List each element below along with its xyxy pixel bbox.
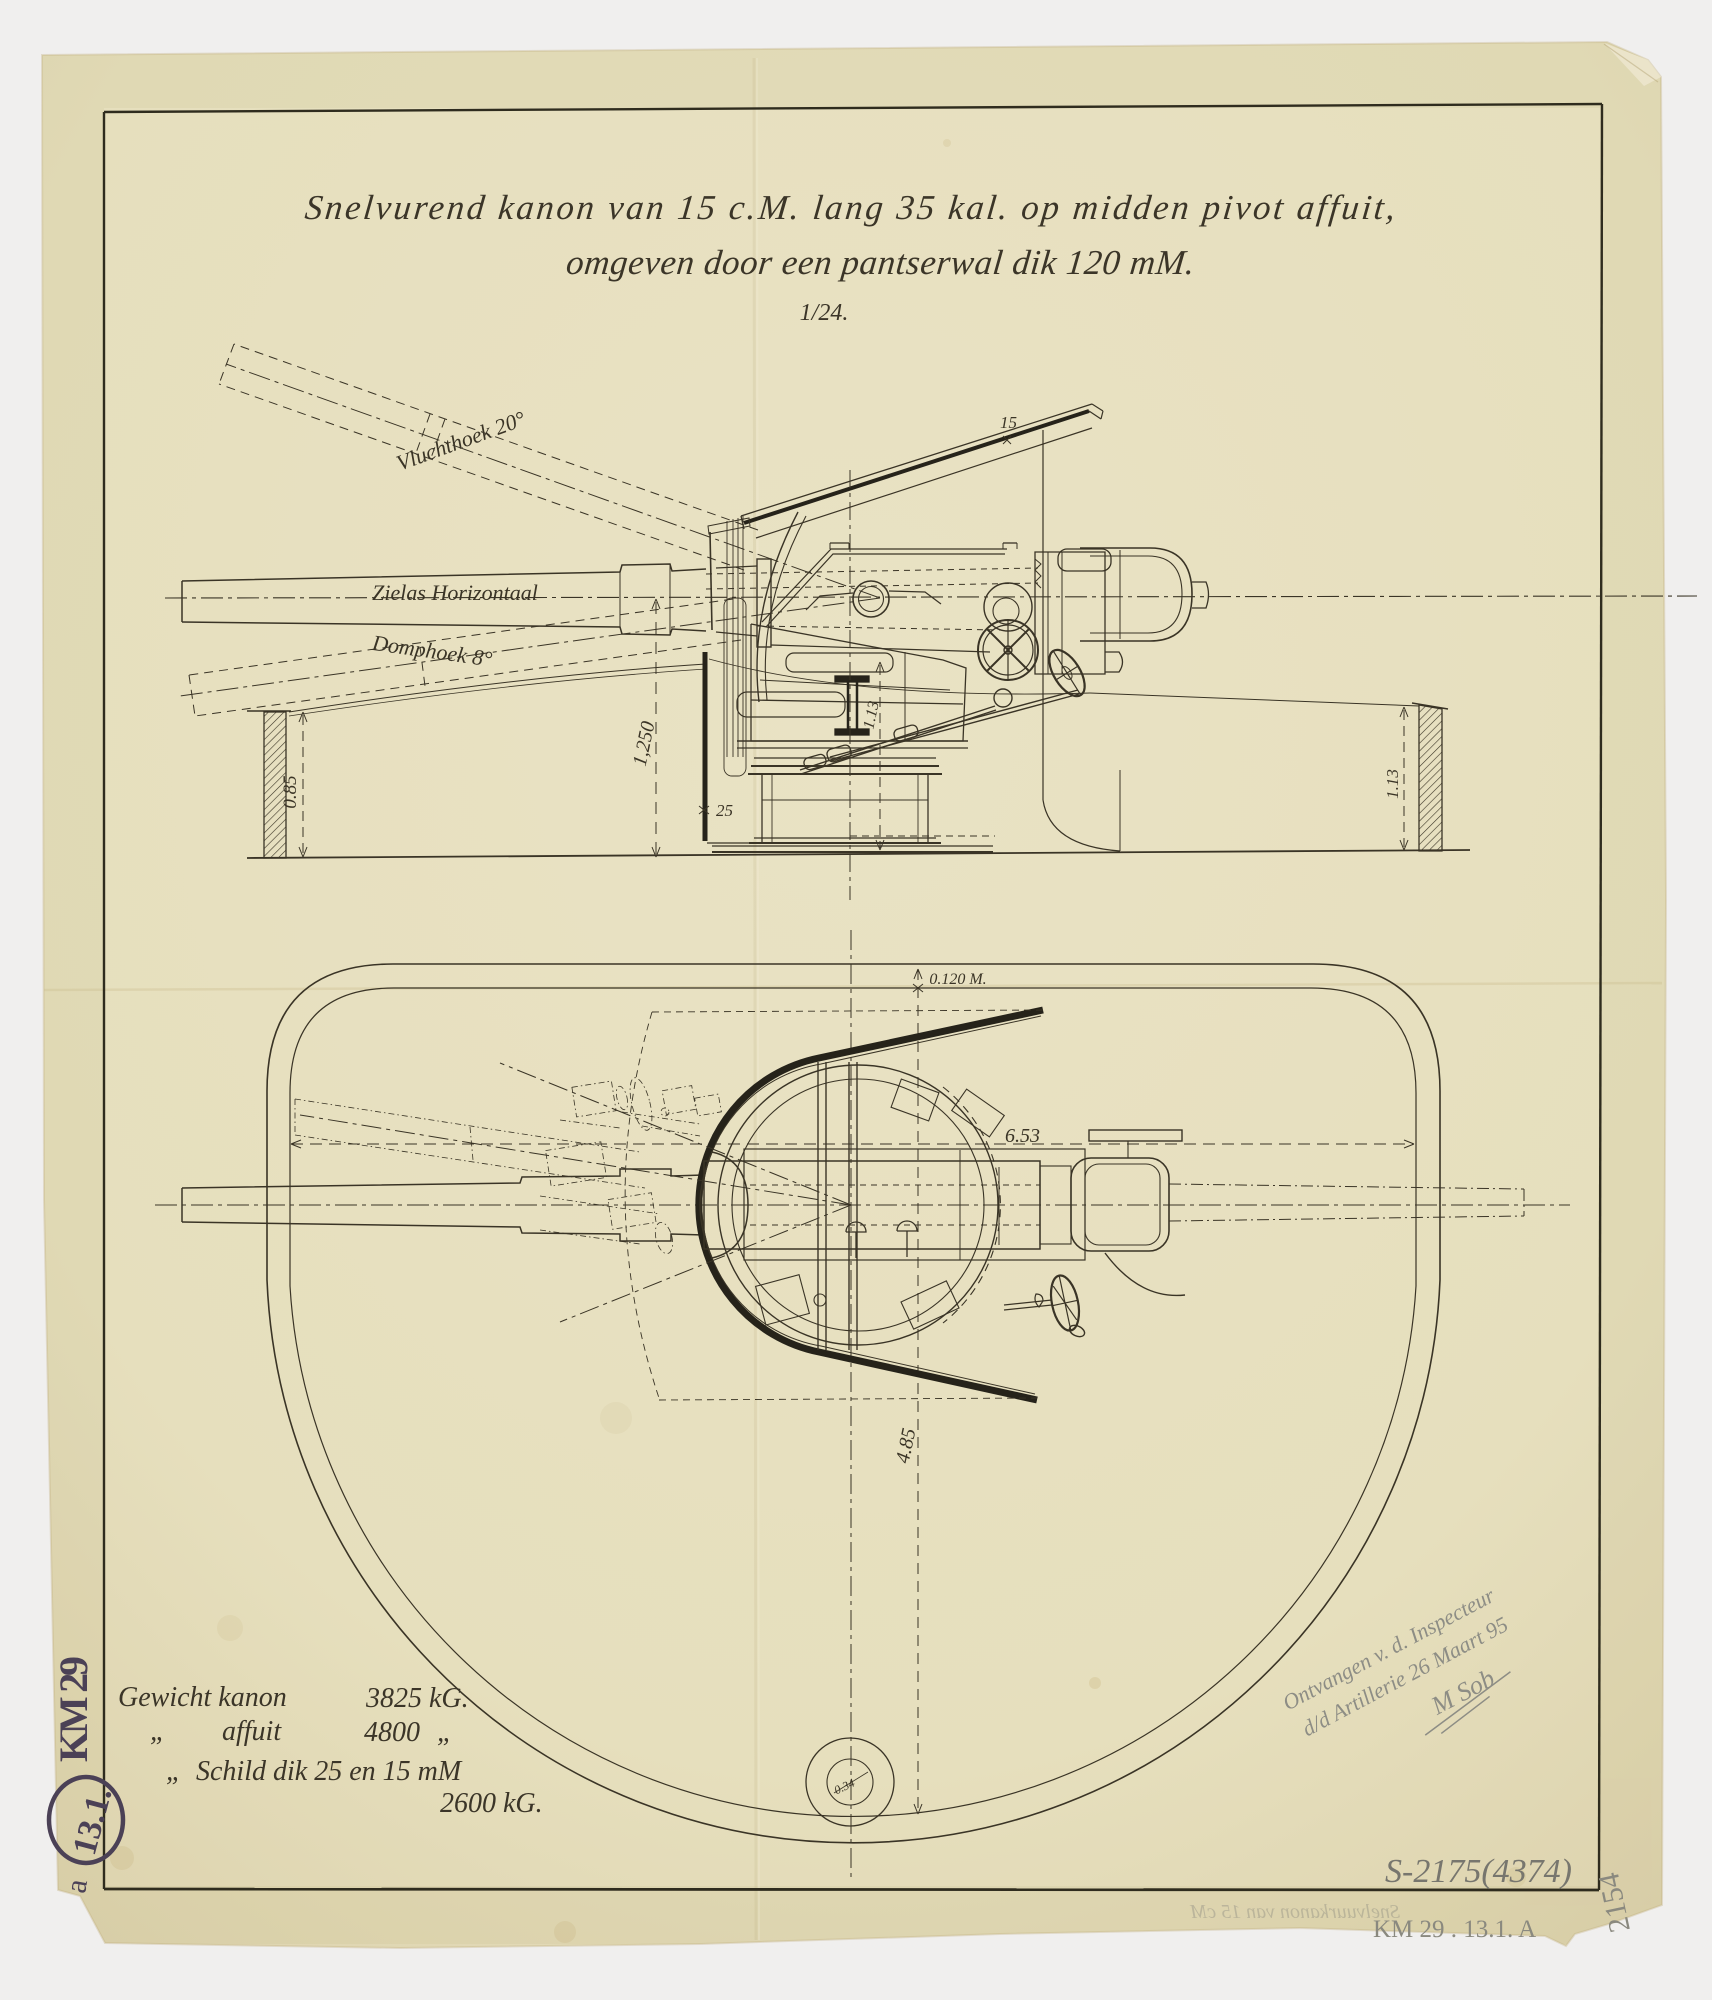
svg-text:Gewicht kanon: Gewicht kanon bbox=[118, 1682, 287, 1713]
svg-text:1.13: 1.13 bbox=[1383, 769, 1402, 799]
svg-text:Snelvuurkanon van 15 cM: Snelvuurkanon van 15 cM bbox=[1189, 1901, 1400, 1923]
svg-text:„: „ bbox=[150, 1716, 166, 1747]
svg-text:25: 25 bbox=[716, 801, 733, 820]
svg-text:6.53: 6.53 bbox=[1005, 1125, 1040, 1147]
svg-text:KM 29: KM 29 bbox=[51, 1656, 96, 1762]
svg-text:0.85: 0.85 bbox=[280, 775, 301, 808]
svg-text:affuit: affuit bbox=[222, 1716, 282, 1747]
svg-text:1/24.: 1/24. bbox=[800, 300, 849, 326]
svg-text:15: 15 bbox=[1000, 413, 1017, 432]
svg-text:Zielas Horizontaal: Zielas Horizontaal bbox=[372, 580, 538, 605]
svg-text:0.120 M.: 0.120 M. bbox=[929, 971, 986, 988]
svg-text:4800: 4800 bbox=[364, 1717, 420, 1748]
svg-text:S-2175(4374): S-2175(4374) bbox=[1385, 1853, 1572, 1890]
svg-text:„: „ bbox=[437, 1717, 453, 1748]
svg-text:omgeven door een pantserwal di: omgeven door een pantserwal dik 120 mM. bbox=[564, 243, 1196, 282]
svg-text:Schild dik 25 en 15 mM: Schild dik 25 en 15 mM bbox=[196, 1756, 463, 1787]
svg-text:2600 kG.: 2600 kG. bbox=[440, 1788, 543, 1819]
svg-text:3825 kG.: 3825 kG. bbox=[365, 1683, 469, 1714]
svg-text:„: „ bbox=[166, 1756, 182, 1787]
